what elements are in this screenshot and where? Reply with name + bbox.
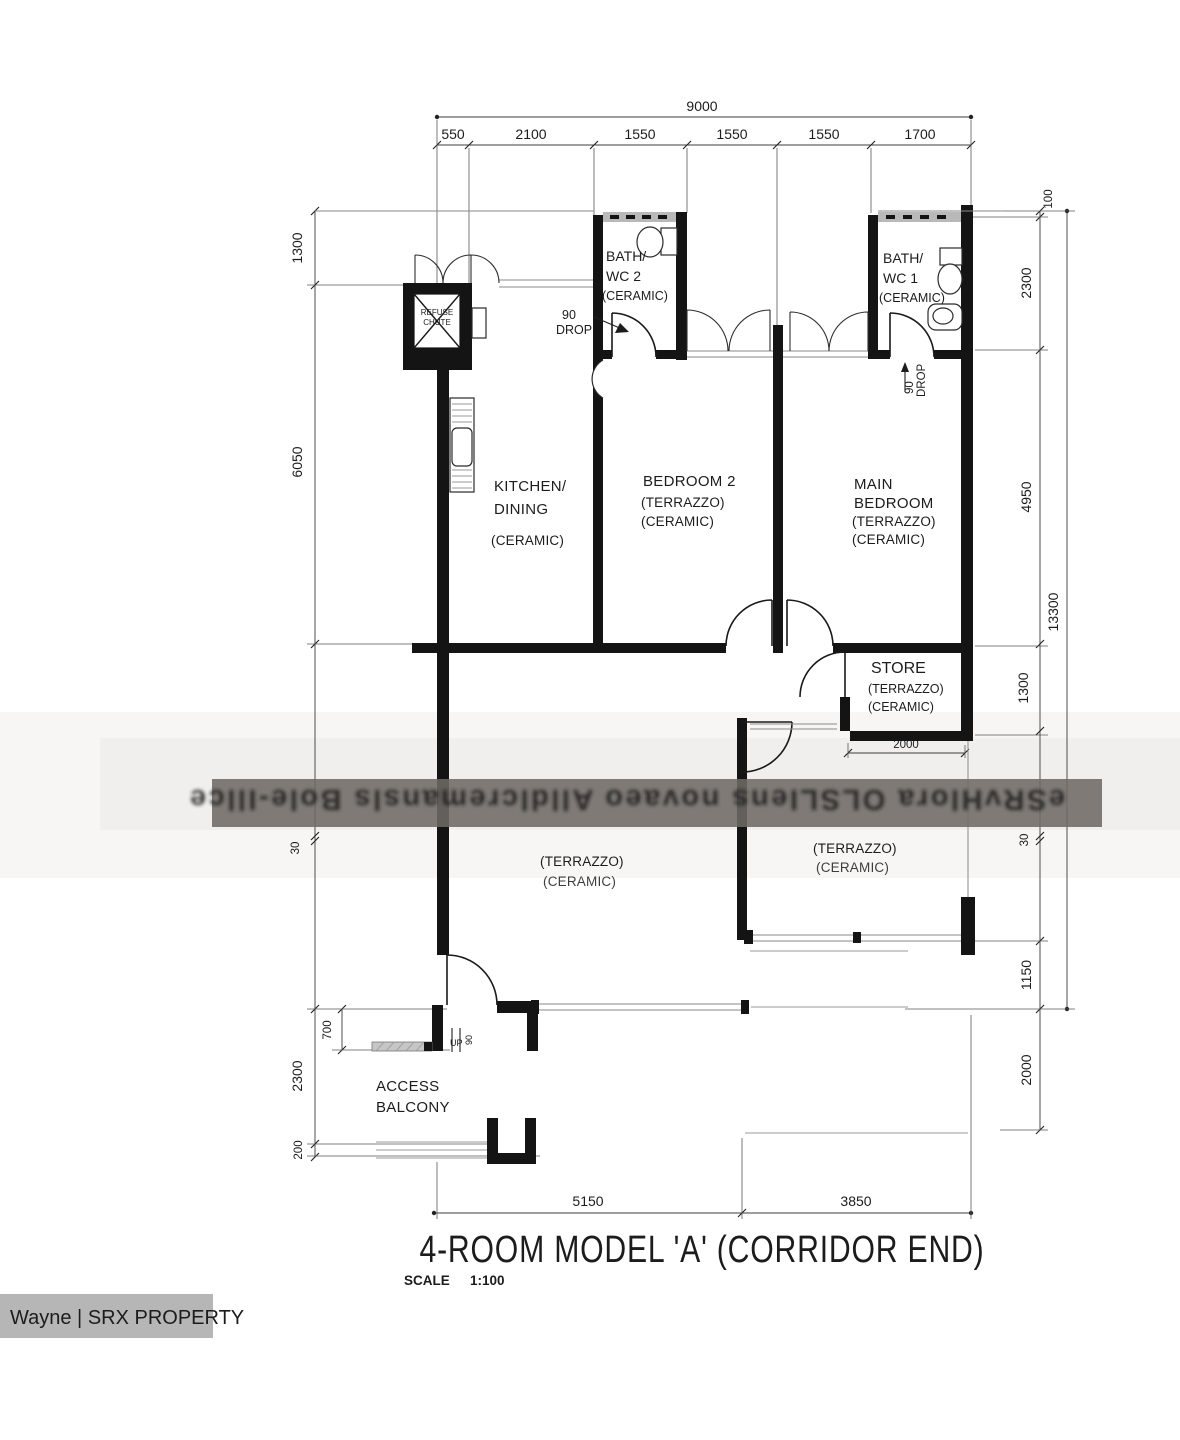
dim-right-2300: 2300 [1018, 267, 1034, 298]
refuse-chute-label1: REFUSE [421, 308, 453, 317]
bedroom2-finish-1: (TERRAZZO) [641, 495, 725, 510]
living-left-finish-1: (TERRAZZO) [540, 854, 624, 869]
living-right-finish-2: (CERAMIC) [816, 860, 889, 875]
refuse-chute: REFUSE CHUTE [403, 283, 486, 370]
dim-top-seg-1550c: 1550 [808, 126, 839, 142]
dim-right-2000: 2000 [1018, 1054, 1034, 1085]
access-balcony-label-1: ACCESS [376, 1078, 440, 1095]
entry-step-label: 90 [464, 1035, 474, 1045]
dim-top-seg-1700: 1700 [904, 126, 935, 142]
bath2-label-1: BATH/ [606, 248, 646, 264]
dimension-right: 100 2300 4950 13300 1300 30 1150 2000 [905, 189, 1075, 1134]
bath1-label-2: WC 1 [883, 270, 918, 286]
bath1-label-1: BATH/ [883, 250, 923, 266]
dim-left-1300: 1300 [289, 232, 305, 263]
attribution-text: Wayne | SRX PROPERTY [10, 1307, 244, 1329]
dim-top-total: 9000 [686, 98, 717, 114]
main-bedroom-label-1: MAIN [854, 476, 893, 493]
walls [412, 205, 1005, 1051]
dim-left-2300: 2300 [289, 1060, 305, 1091]
dim-left-700: 700 [322, 1020, 334, 1039]
living-left-finish-2: (CERAMIC) [543, 874, 616, 889]
drop-note-right-num: 90 [904, 381, 916, 394]
store-label: STORE [871, 660, 926, 677]
bath1-finish: (CERAMIC) [879, 291, 945, 305]
main-bedroom-finish-1: (TERRAZZO) [852, 514, 936, 529]
plan-title: 4-ROOM MODEL 'A' (CORRIDOR END) [420, 1229, 985, 1271]
bedroom2-finish-2: (CERAMIC) [641, 514, 714, 529]
scale-label: SCALE [404, 1273, 450, 1288]
dim-left-30: 30 [290, 842, 302, 855]
room-labels: KITCHEN/ DINING (CERAMIC) BEDROOM 2 (TER… [376, 248, 945, 1116]
dim-left-6050: 6050 [289, 446, 305, 477]
dim-top-seg-2100: 2100 [515, 126, 546, 142]
store-finish-2: (CERAMIC) [868, 700, 934, 714]
floor-plan-drawing: 9000 550 2100 1550 1550 1550 1700 1300 6… [0, 0, 1180, 1440]
drop-note-left-num: 90 [562, 308, 576, 322]
main-bedroom-label-2: BEDROOM [854, 495, 934, 512]
dim-top-seg-1550b: 1550 [716, 126, 747, 142]
kitchen-label-1: KITCHEN/ [494, 478, 567, 495]
dim-left-200: 200 [293, 1140, 305, 1159]
attribution-badge: Wayne | SRX PROPERTY [0, 1294, 244, 1338]
main-bedroom-finish-2: (CERAMIC) [852, 532, 925, 547]
drop-note-left-word: DROP [556, 323, 592, 337]
scale-value: 1:100 [470, 1273, 505, 1288]
dim-right-1150: 1150 [1018, 960, 1034, 990]
dimension-bottom: 5150 3850 [432, 1015, 973, 1219]
watermark-band: eSRvHlora OLSLIens novaeo Alldlcremansls… [188, 779, 1102, 827]
dim-right-1300: 1300 [1015, 672, 1031, 703]
kitchen-label-2: DINING [494, 501, 548, 518]
dim-bottom-5150: 5150 [572, 1193, 603, 1209]
drop-note-right-word: DROP [916, 363, 928, 397]
dim-top-seg-550: 550 [441, 126, 465, 142]
doors [447, 313, 934, 1005]
refuse-chute-label2: CHUTE [423, 318, 451, 327]
access-balcony-label-2: BALCONY [376, 1099, 450, 1116]
bath2-label-2: WC 2 [606, 268, 641, 284]
dim-bottom-3850: 3850 [840, 1193, 871, 1209]
entry-up-label: UP [450, 1038, 463, 1048]
dim-right-100: 100 [1043, 189, 1055, 208]
watermark-text: eSRvHlora OLSLIens novaeo Alldlcremansls… [188, 783, 1065, 815]
kitchen-finish: (CERAMIC) [491, 533, 564, 548]
dim-right-13300: 13300 [1045, 592, 1061, 631]
dim-right-30: 30 [1019, 834, 1031, 847]
dim-right-4950: 4950 [1018, 481, 1034, 512]
store-finish-1: (TERRAZZO) [868, 682, 944, 696]
title-block: 4-ROOM MODEL 'A' (CORRIDOR END) SCALE 1:… [404, 1229, 985, 1288]
floor-plan-page: 9000 550 2100 1550 1550 1550 1700 1300 6… [0, 0, 1180, 1440]
dim-top-seg-1550a: 1550 [624, 126, 655, 142]
bedroom2-label: BEDROOM 2 [643, 473, 736, 490]
living-right-finish-1: (TERRAZZO) [813, 841, 897, 856]
bath2-finish: (CERAMIC) [602, 289, 668, 303]
